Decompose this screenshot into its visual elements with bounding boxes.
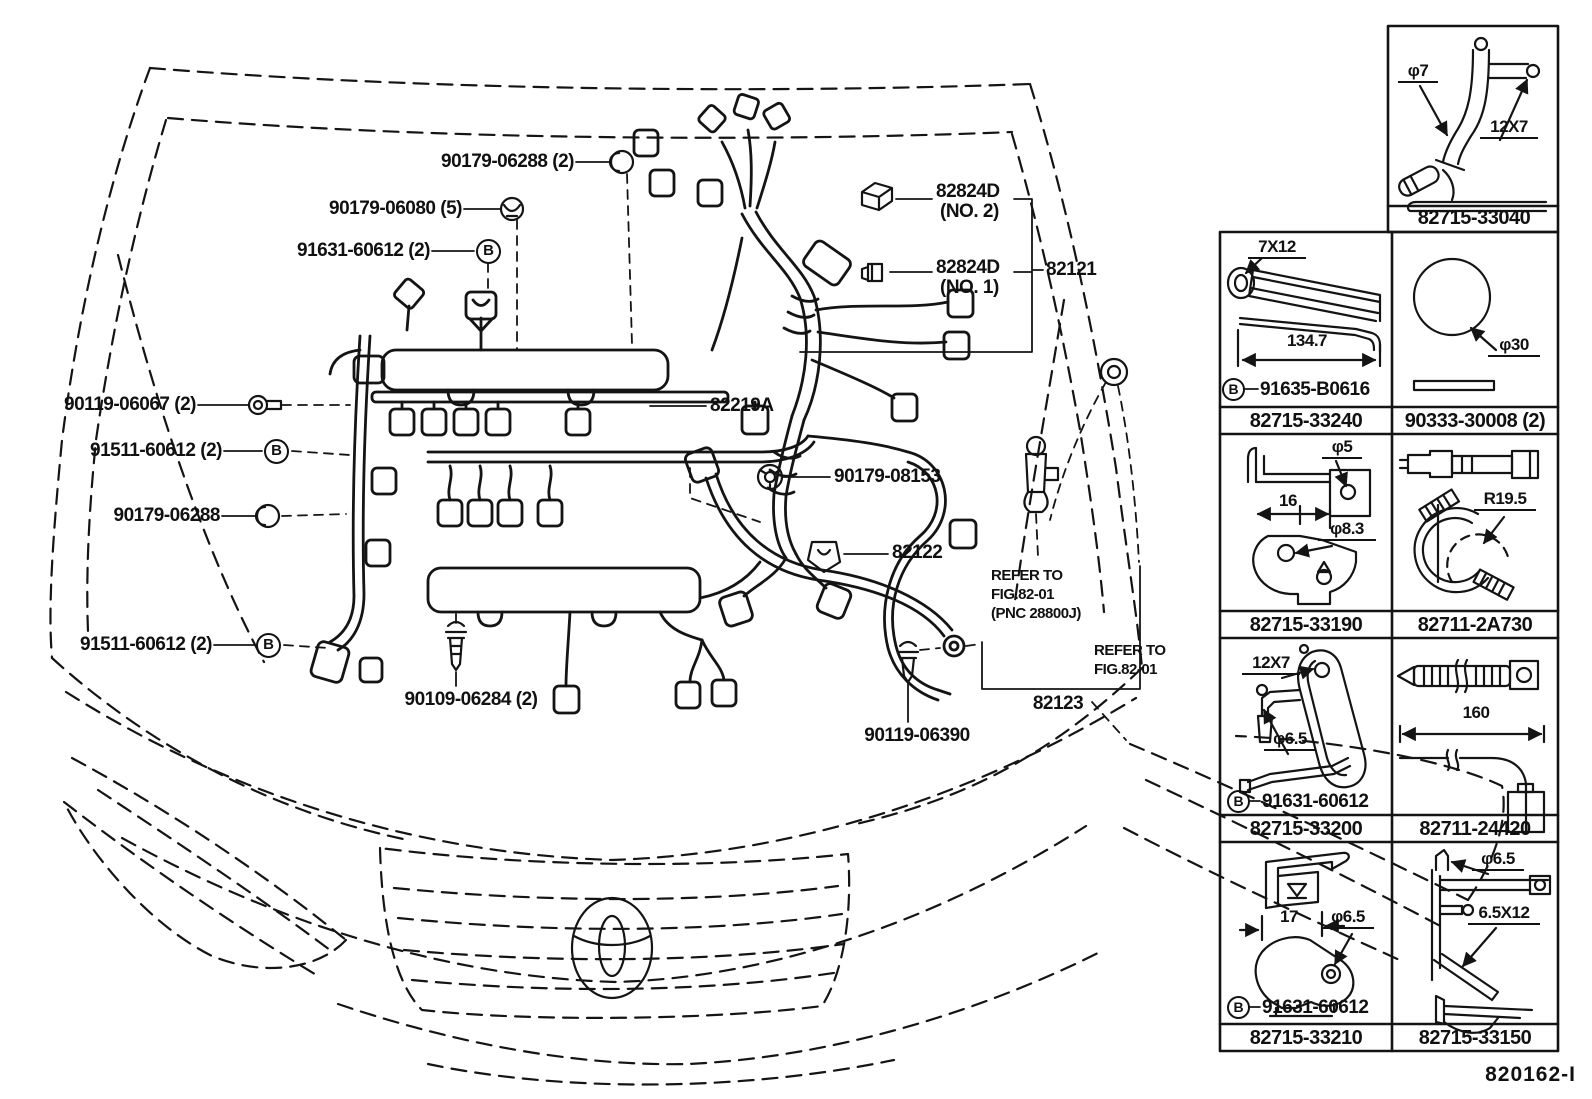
refer-note-line: REFER TO xyxy=(991,566,1081,585)
part-label-91511-60612-low: 91511-60612 (2) xyxy=(74,635,212,655)
part-number-82715-33150: 82715-33150 xyxy=(1394,1027,1556,1049)
dim-17: 17 xyxy=(1272,908,1306,926)
dim-phi8-3: φ8.3 xyxy=(1318,520,1376,541)
part-number-82715-33040: 82715-33040 xyxy=(1390,207,1558,229)
grommet xyxy=(1101,359,1127,385)
dim-12x7-2: 12X7 xyxy=(1242,654,1300,675)
part-number-82715-33210: 82715-33210 xyxy=(1222,1027,1390,1049)
refer-note-line: FIG.82-01 xyxy=(1094,660,1166,679)
dim-phi30: φ30 xyxy=(1488,336,1540,357)
screw-icon xyxy=(446,622,466,638)
part-label-91511-60612-mid: 91511-60612 (2) xyxy=(84,441,222,461)
dim-r19-5: R19.5 xyxy=(1474,490,1536,511)
part-label-90179-06288-top: 90179-06288 (2) xyxy=(432,152,574,172)
refer-note-pnc: REFER TO FIG.82-01 (PNC 28800J) xyxy=(991,566,1081,623)
parts-diagram-page: 90179-06288 (2) 90179-06080 (5) 91631-60… xyxy=(0,0,1592,1099)
part-label-82824D-no2: 82824D xyxy=(936,182,1016,202)
part-label-90119-06390: 90119-06390 xyxy=(846,726,988,746)
part-label-90179-06288-left: 90179-06288 xyxy=(108,506,220,526)
dim-16: 16 xyxy=(1270,492,1306,510)
part-number-90333-30008: 90333-30008 (2) xyxy=(1394,410,1556,432)
b-circle-symbol: B xyxy=(256,633,281,658)
refer-note-line: REFER TO xyxy=(1094,641,1166,660)
bolt-icon xyxy=(249,396,267,414)
dim-phi6-5-2: φ6.5 xyxy=(1322,908,1374,929)
dim-7x12: 7X12 xyxy=(1248,238,1306,259)
diagram-artwork xyxy=(0,0,1592,1099)
part-number-82711-2A730: 82711-2A730 xyxy=(1394,614,1556,636)
part-label-91631-60612-b: 91631-60612 xyxy=(1262,998,1390,1018)
b-circle-symbol: B xyxy=(264,439,289,464)
part-label-82123: 82123 xyxy=(1026,694,1090,714)
refer-note-line: (PNC 28800J) xyxy=(991,604,1081,623)
grille xyxy=(380,848,849,1018)
b-circle-symbol: B xyxy=(1222,378,1245,401)
dim-phi6-5-3: φ6.5 xyxy=(1472,850,1524,871)
part-90333-30008-drawing xyxy=(1414,259,1496,390)
dim-12x7: 12X7 xyxy=(1480,118,1538,139)
part-label-91635-B0616: 91635-B0616 xyxy=(1260,380,1390,400)
dim-phi6-5: φ6.5 xyxy=(1264,730,1316,751)
part-number-82711-24420: 82711-24420 xyxy=(1394,818,1556,840)
engine-harness xyxy=(310,93,976,713)
dim-160: 160 xyxy=(1450,704,1502,722)
part-label-82121: 82121 xyxy=(1046,260,1116,280)
clip-cyl-icon xyxy=(862,264,882,281)
part-label-91631-60612-top: 91631-60612 (2) xyxy=(292,241,430,261)
b-circle-symbol: B xyxy=(1227,790,1250,813)
part-82715-33150-drawing xyxy=(1432,850,1550,1033)
dim-phi5: φ5 xyxy=(1322,438,1362,459)
part-82715-33210-drawing xyxy=(1240,853,1353,1016)
part-label-90179-06080: 90179-06080 (5) xyxy=(326,199,462,219)
dim-phi7: φ7 xyxy=(1398,62,1438,83)
part-number-82715-33200: 82715-33200 xyxy=(1222,818,1390,840)
part-number-82715-33240: 82715-33240 xyxy=(1222,410,1390,432)
parts-grid xyxy=(1220,26,1558,1051)
screw-icon xyxy=(898,642,918,658)
b-circle-symbol: B xyxy=(476,239,501,264)
refer-note-line: FIG.82-01 xyxy=(991,585,1081,604)
part-label-82824D-no1: 82824D xyxy=(936,258,1016,278)
part-label-82219A: 82219A xyxy=(710,396,794,416)
part-label-90119-06067: 90119-06067 (2) xyxy=(60,395,196,415)
part-label-82824D-no1-sub: (NO. 1) xyxy=(940,278,1020,298)
figure-code: 820162-I xyxy=(1436,1064,1576,1086)
part-label-91631-60612-a: 91631-60612 xyxy=(1262,792,1390,812)
refer-note-2: REFER TO FIG.82-01 xyxy=(1094,641,1166,679)
b-circle-symbol: B xyxy=(1227,996,1250,1019)
part-number-82715-33190: 82715-33190 xyxy=(1222,614,1390,636)
clip-box-icon xyxy=(862,183,892,210)
part-label-82122: 82122 xyxy=(892,543,962,563)
brand-emblem xyxy=(572,898,652,998)
dim-6-5x12: 6.5X12 xyxy=(1468,904,1540,925)
part-label-90109-06284: 90109-06284 (2) xyxy=(398,690,544,710)
part-82711-24420-drawing xyxy=(1398,660,1544,832)
part-label-82824D-no2-sub: (NO. 2) xyxy=(940,202,1020,222)
dim-134-7: 134.7 xyxy=(1272,332,1342,350)
part-82711-2A730-drawing xyxy=(1400,451,1538,600)
part-label-90179-08153: 90179-08153 xyxy=(834,467,966,487)
